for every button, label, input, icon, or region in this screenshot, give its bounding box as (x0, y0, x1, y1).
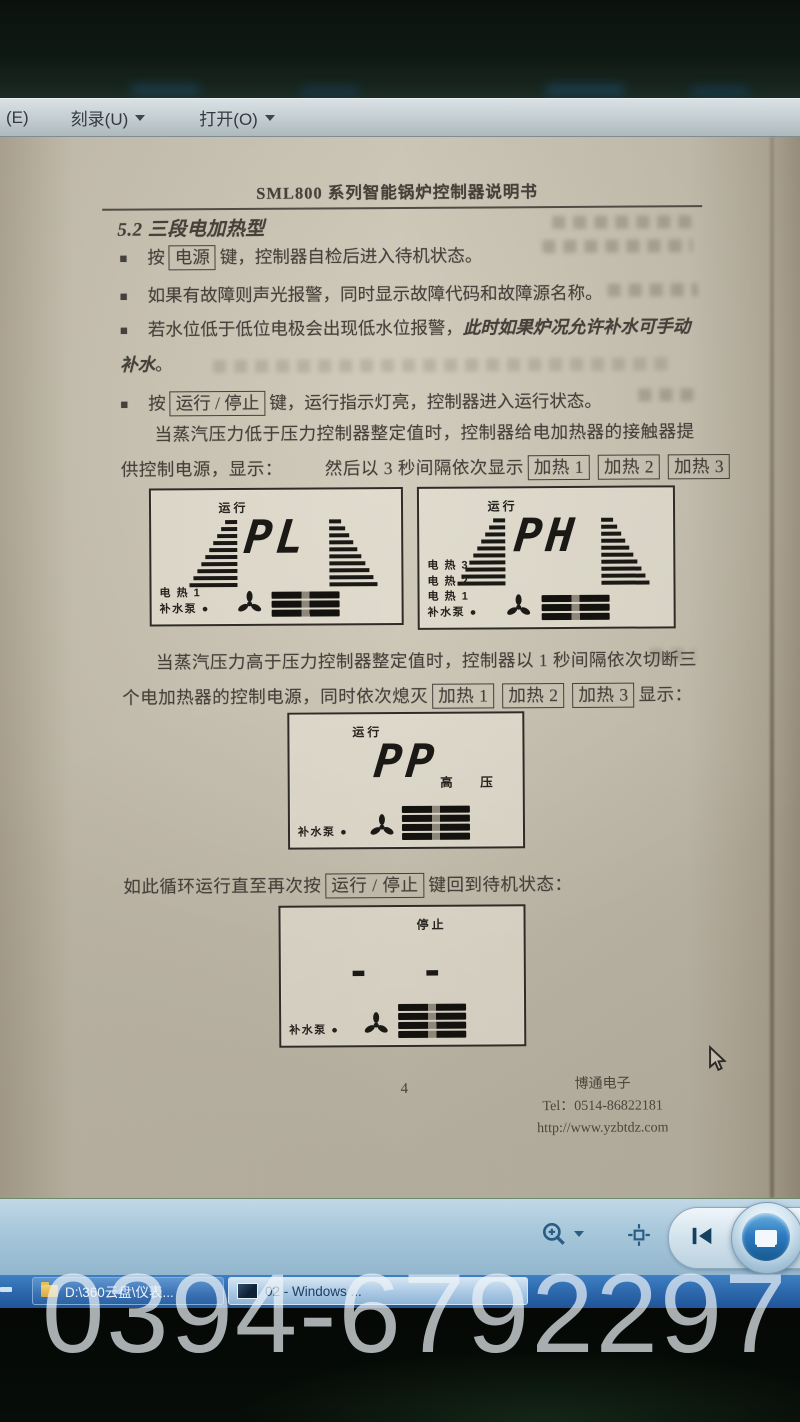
gauge-bar (217, 534, 237, 538)
para-low-line1: 当蒸汽压力低于压力控制器整定值时，控制器给电加热器的接触器提 (154, 418, 694, 446)
heater-bar (402, 824, 470, 831)
loop-line-pre: 如此循环运行直至再次按 (123, 875, 321, 896)
para-high-line1: 当蒸汽压力高于压力控制器整定值时，控制器以 1 秒间隔依次切断三 (156, 646, 697, 674)
lcd-status-label: 停止 (417, 916, 447, 933)
lcd-left-labels: 电 热 1补水泵 ● (160, 586, 210, 617)
gauge-bar (473, 553, 505, 557)
gauge-bar (201, 562, 237, 566)
heater-bar (402, 833, 470, 840)
lcd-label: 补水泵 ● (428, 605, 478, 621)
reflection-glow (130, 84, 200, 96)
menu-open[interactable]: 打开(O) (193, 105, 281, 130)
lcd-left-labels: 补水泵 ● (298, 825, 348, 841)
gauge-bar (485, 532, 505, 536)
gauge-bar (601, 525, 617, 529)
gauge-bar (601, 573, 645, 577)
menu-email[interactable]: (E) (0, 108, 35, 128)
bullet-power-text: 按 (147, 247, 165, 267)
heater-bar (272, 609, 340, 616)
gauge-bar (329, 526, 345, 530)
chevron-down-icon (135, 115, 145, 121)
power-key-box: 电源 (169, 245, 216, 270)
gauge-bar (221, 527, 237, 531)
chevron-down-icon (574, 1231, 584, 1237)
water-level-gauge-right (601, 517, 649, 584)
heater-bar (402, 806, 470, 813)
water-level-gauge-right (329, 519, 377, 586)
footer-company: 博通电子 (502, 1073, 702, 1096)
heater-bar (272, 591, 340, 598)
lcd-label: 补水泵 ● (289, 1023, 339, 1039)
gauge-bar (197, 569, 237, 573)
gauge-bar (601, 539, 625, 543)
gauge-bar (329, 519, 341, 523)
run-stop-key-box: 运行 / 停止 (325, 873, 424, 899)
bullet-water-text2: 。 (155, 354, 173, 374)
heat1-box: 加热 1 (432, 683, 494, 708)
reflection-glow (300, 86, 360, 98)
watermark-phone-number: 0394-6792297 (42, 1258, 788, 1370)
gauge-bar (329, 561, 365, 565)
heat2-box: 加热 2 (502, 683, 564, 708)
bullet-run-text2: 键，运行指示灯亮，控制器进入运行状态。 (269, 391, 602, 413)
bullet-marker: ■ (120, 313, 128, 348)
water-level-gauge-left (189, 520, 237, 587)
gauge-bar (601, 553, 633, 557)
gauge-bar (489, 525, 505, 529)
gauge-bar (601, 546, 629, 550)
gauge-bar (213, 541, 237, 545)
bullet-marker: ■ (119, 241, 127, 276)
lcd-label: 电 热 1 (160, 586, 210, 602)
gauge-bar (601, 567, 641, 571)
reflection-glow (545, 84, 625, 96)
heat3-box: 加热 3 (668, 454, 730, 479)
lcd-value: - - (281, 948, 524, 993)
taskbar-edge-fragment (0, 1287, 12, 1292)
gauge-bar (601, 580, 649, 584)
lcd-label: 电 热 3 (427, 559, 477, 575)
heater-bars (272, 591, 340, 616)
para-low-line2-mid: 然后以 3 秒间隔依次显示 (325, 457, 524, 478)
fan-icon (503, 592, 533, 622)
gauge-bar (329, 554, 361, 558)
gauge-bar (601, 560, 637, 564)
bullet-fault-text: 如果有故障则声光报警，同时显示故障代码和故障源名称。 (148, 283, 603, 306)
heater-bars (402, 806, 470, 840)
fan-icon (234, 589, 264, 619)
heater-bar (542, 613, 610, 620)
para-low-line2: 供控制电源，显示：然后以 3 秒间隔依次显示加热 1加热 2加热 3 (121, 453, 735, 483)
loop-line-post: 键回到待机状态： (428, 874, 572, 895)
footer-contact: 博通电子 Tel：0514-86822181 http://www.yzbtdz… (502, 1073, 702, 1140)
actual-size-button[interactable] (626, 1222, 652, 1248)
reflection-glow (690, 86, 750, 98)
bullet-power-text2: 键，控制器自检后进入待机状态。 (220, 245, 483, 267)
bullet-water-text: 若水位低于低位电极会出现低水位报警， (148, 318, 463, 340)
para-low-line2-pre: 供控制电源，显示： (121, 459, 283, 480)
heat1-box: 加热 1 (528, 455, 590, 480)
gauge-bar (601, 532, 621, 536)
high-pressure-label: 高 压 (440, 771, 505, 790)
mouse-cursor (703, 1045, 731, 1075)
document-title: SML800 系列智能锅炉控制器说明书 (0, 177, 797, 206)
run-stop-key-box: 运行 / 停止 (170, 391, 266, 417)
photo-viewer-canvas: SML800 系列智能锅炉控制器说明书 5.2 三段电加热型 ■按电源键，控制器… (0, 137, 800, 1198)
lcd-display-pl: 运行 PL 电 热 1补水泵 ● (149, 487, 404, 627)
zoom-button[interactable] (540, 1220, 584, 1248)
bleed-smudge (552, 215, 692, 229)
gauge-bar (329, 575, 373, 579)
heater-bar (541, 595, 609, 602)
heater-bar (402, 815, 470, 822)
heat3-box: 加热 3 (572, 683, 634, 708)
loop-line: 如此循环运行直至再次按运行 / 停止键回到待机状态： (123, 871, 572, 900)
fan-icon (367, 812, 397, 842)
para-high-line2-pre: 个电加热器的控制电源，同时依次熄灭 (122, 686, 428, 708)
heat2-box: 加热 2 (598, 454, 660, 479)
gauge-bar (329, 547, 357, 551)
gauge-bar (329, 540, 353, 544)
magnifier-icon (540, 1220, 568, 1248)
gauge-bar (477, 546, 505, 550)
heater-bars (541, 595, 609, 620)
title-rule (102, 205, 702, 211)
screen-glyph (755, 1230, 777, 1245)
bullet-marker: ■ (120, 387, 128, 422)
footer-url: http://www.yzbtdz.com (503, 1117, 703, 1140)
gauge-bar (329, 568, 369, 572)
page-number: 4 (401, 1081, 409, 1098)
fan-icon (361, 1010, 391, 1040)
gauge-bar (493, 518, 505, 522)
bullet-run: ■按运行 / 停止键，运行指示灯亮，控制器进入运行状态。 (120, 383, 698, 422)
lcd-label: 电 热 1 (428, 590, 478, 606)
monitor-bezel-top (0, 0, 800, 98)
gauge-bar (205, 555, 237, 559)
section-title: 5.2 三段电加热型 (117, 214, 265, 242)
heater-bar (542, 604, 610, 611)
heater-bar (398, 1031, 466, 1038)
lcd-display-standby: 停止 - - 补水泵 ● (278, 904, 526, 1048)
gauge-bar (329, 582, 377, 586)
gauge-bar (225, 520, 237, 524)
bullet-fault: ■如果有故障则声光报警，同时显示故障代码和故障源名称。 (120, 275, 698, 314)
bullet-water: ■若水位低于低位电极会出现低水位报警，此时如果炉况允许补水可手动补水。 (120, 309, 698, 383)
lcd-left-labels: 补水泵 ● (289, 1023, 339, 1039)
lcd-label: 补水泵 ● (298, 825, 348, 841)
heater-bar (398, 1013, 466, 1020)
lcd-label: 补水泵 ● (160, 602, 210, 618)
monitor-photo: (E) 刻录(U) 打开(O) SML800 系列智能锅炉控制器说明书 5.2 … (0, 0, 800, 1422)
footer-tel: Tel：0514-86822181 (503, 1095, 703, 1118)
menu-burn[interactable]: 刻录(U) (65, 105, 152, 130)
bullet-power: ■按电源键，控制器自检后进入待机状态。 (119, 237, 697, 276)
heater-bar (272, 600, 340, 607)
bullet-run-text: 按 (148, 393, 166, 413)
previous-button[interactable] (688, 1222, 716, 1250)
gauge-bar (209, 548, 237, 552)
heater-bar (398, 1022, 466, 1029)
bullet-marker: ■ (120, 279, 128, 314)
photo-viewer-menubar: (E) 刻录(U) 打开(O) (0, 98, 800, 137)
gauge-bar (193, 576, 237, 580)
para-high-line2: 个电加热器的控制电源，同时依次熄灭加热 1加热 2加热 3显示： (122, 681, 693, 710)
lcd-label: 电 热 2 (427, 574, 477, 590)
gauge-bar (601, 518, 613, 522)
gauge-bar (329, 533, 349, 537)
manual-page: SML800 系列智能锅炉控制器说明书 5.2 三段电加热型 ■按电源键，控制器… (0, 135, 800, 1201)
lcd-left-labels: 电 热 3电 热 2电 热 1补水泵 ● (427, 559, 478, 621)
gauge-bar (481, 539, 505, 543)
para-high-line2-post: 显示： (638, 684, 692, 704)
lcd-display-pp: 运行 PP 高 压 补水泵 ● (287, 711, 525, 849)
heater-bars (398, 1004, 466, 1038)
heater-bar (398, 1004, 466, 1011)
menu-email-label: (E) (6, 108, 29, 128)
menu-open-label: 打开(O) (199, 105, 258, 130)
chevron-down-icon (265, 115, 275, 121)
lcd-display-ph: 运行 PH 电 热 3电 热 2电 热 1补水泵 ● (417, 485, 676, 630)
menu-burn-label: 刻录(U) (71, 105, 129, 130)
